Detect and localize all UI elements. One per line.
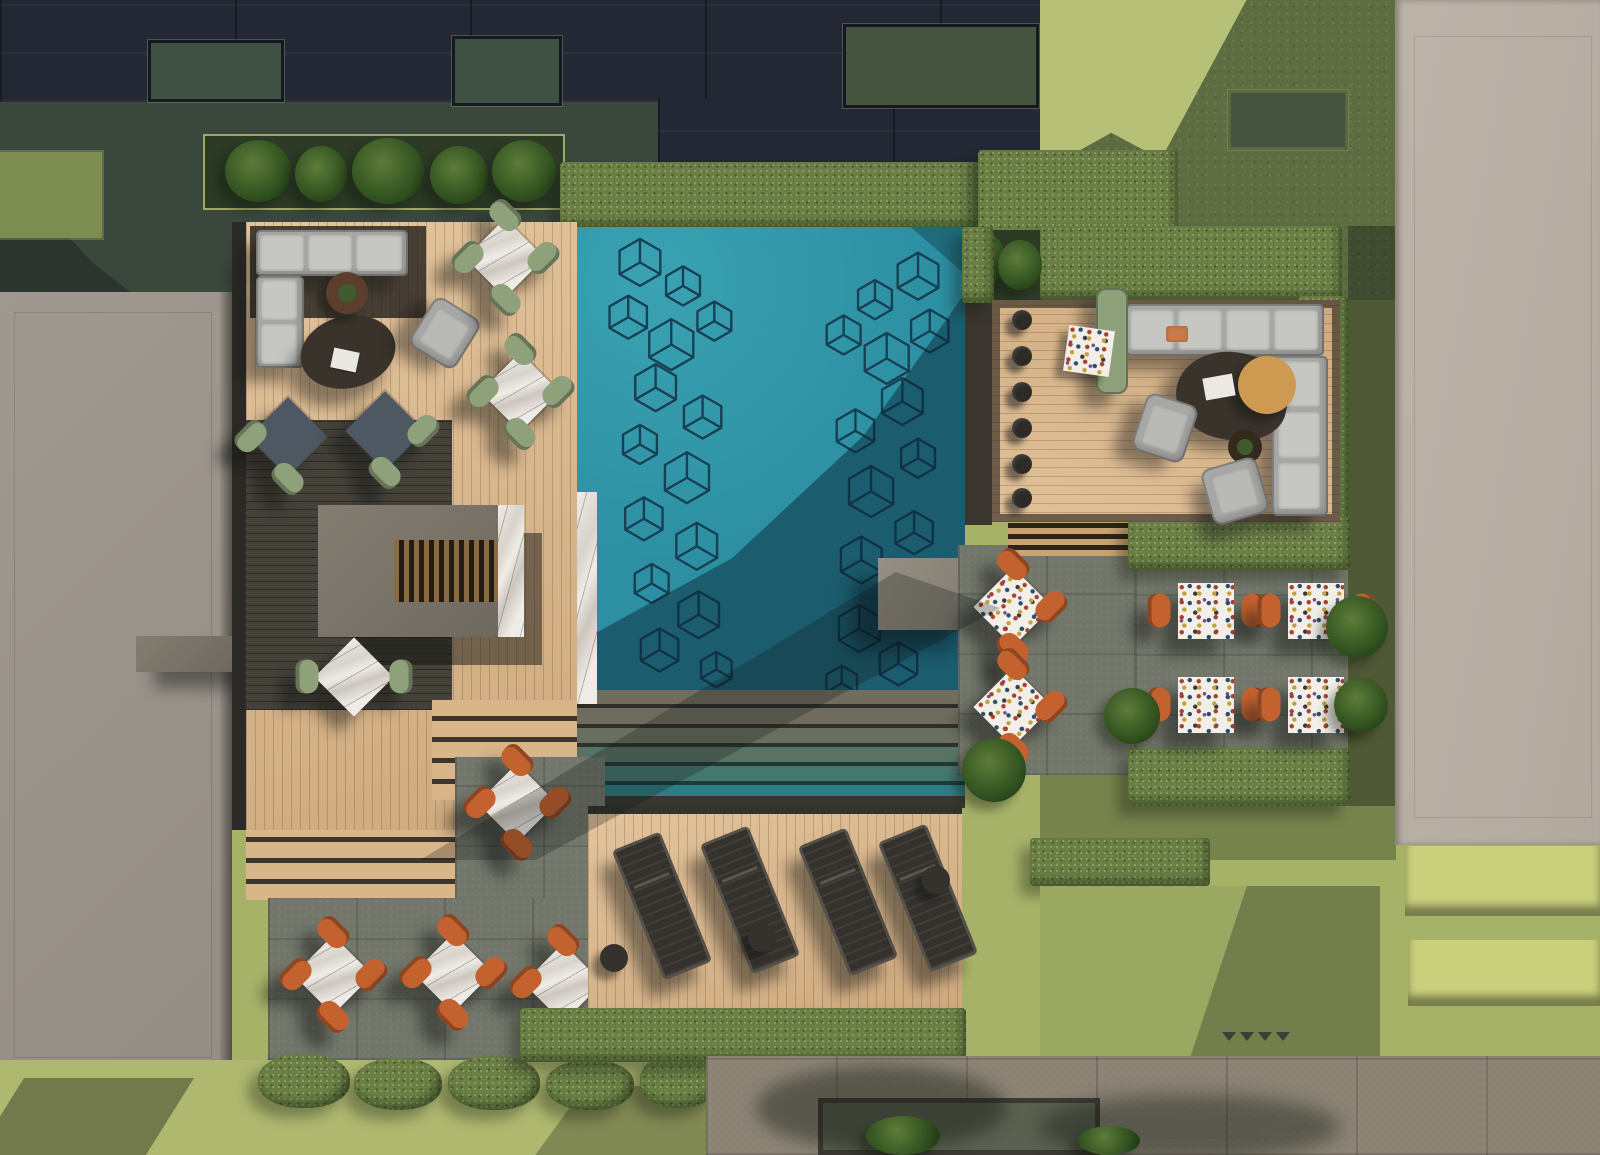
terrace-grass-patch — [0, 152, 102, 238]
dining-set-orange — [278, 920, 388, 1030]
tropical-plant — [295, 146, 347, 202]
hedge-alcove-top — [1128, 516, 1350, 570]
dining-set-orange — [398, 918, 508, 1028]
stair-marks — [1276, 1032, 1290, 1041]
tropical-plant — [430, 146, 488, 204]
aerial-render — [0, 0, 1600, 1155]
recessed-patio — [148, 40, 284, 102]
side-table — [922, 866, 950, 894]
palm-plant — [1104, 688, 1160, 744]
hedge-pool-corner — [962, 227, 994, 303]
palm-plant — [962, 738, 1026, 802]
recessed-patio — [1228, 90, 1348, 150]
dining-set-green-2seat — [288, 648, 420, 706]
stair-marks — [1258, 1032, 1272, 1041]
pool-east-edge — [965, 300, 992, 525]
stair-marks — [1240, 1032, 1254, 1041]
swim-up-bar-counter — [577, 492, 597, 704]
bar-stool — [1012, 454, 1032, 474]
hedge-ball — [546, 1060, 634, 1110]
side-table — [748, 924, 776, 952]
bar-stool — [1012, 418, 1032, 438]
tropical-plant — [352, 138, 424, 204]
bar-counter-marble — [498, 505, 524, 637]
tree-canopy — [866, 1116, 940, 1155]
dining-set-orange — [958, 552, 1068, 662]
hedge-ball — [258, 1054, 350, 1108]
sectional-sofa-west — [256, 230, 408, 276]
deck-steps — [246, 830, 456, 900]
dining-set-green — [465, 337, 575, 447]
planter-bowl — [326, 272, 368, 314]
skylight-panel — [1408, 940, 1600, 1006]
sun-deck-edge — [588, 806, 962, 814]
tree-canopy — [1078, 1126, 1140, 1155]
side-table — [600, 944, 628, 972]
pool-steps — [577, 690, 965, 800]
skylight-panel — [1405, 846, 1600, 916]
timber-bridge — [1008, 516, 1138, 556]
left-roof-seam — [14, 312, 212, 1058]
west-deck-border — [232, 222, 246, 830]
recessed-patio — [452, 36, 562, 106]
beige-roof-seam — [1414, 36, 1592, 818]
hedge-ball — [448, 1056, 540, 1110]
dining-set-green — [450, 203, 560, 313]
timber-side-table — [1238, 356, 1296, 414]
hedge-north — [560, 162, 980, 228]
dining-set-slate — [233, 382, 343, 492]
sectional-sofa-east — [1126, 304, 1324, 356]
hedge-below-sundeck — [520, 1008, 966, 1062]
tropical-plant — [225, 140, 291, 202]
hedge-ball — [354, 1058, 442, 1110]
dining-set-orange — [462, 748, 572, 858]
side-table-terrazzo — [1063, 325, 1115, 377]
hedge-above-east-lounge — [1040, 226, 1342, 300]
recessed-patio — [843, 24, 1039, 108]
hedge-mid-right — [1030, 838, 1210, 886]
bar-stool — [1012, 488, 1032, 508]
sectional-sofa-west-return — [256, 276, 304, 368]
dining-set-slate — [330, 376, 440, 486]
bar-stool — [1012, 310, 1032, 330]
hedge-alcove-bottom — [1128, 748, 1350, 806]
bar-pergola-slats — [394, 540, 498, 602]
tropical-plant — [998, 240, 1042, 290]
rooftop-unit — [136, 636, 232, 672]
stair-marks — [1222, 1032, 1236, 1041]
palm-plant — [1326, 596, 1388, 658]
tropical-plant — [492, 140, 556, 202]
bar-stool — [1012, 382, 1032, 402]
left-roof-edge — [220, 292, 232, 1070]
bar-stool — [1012, 346, 1032, 366]
palm-plant — [1334, 678, 1388, 732]
